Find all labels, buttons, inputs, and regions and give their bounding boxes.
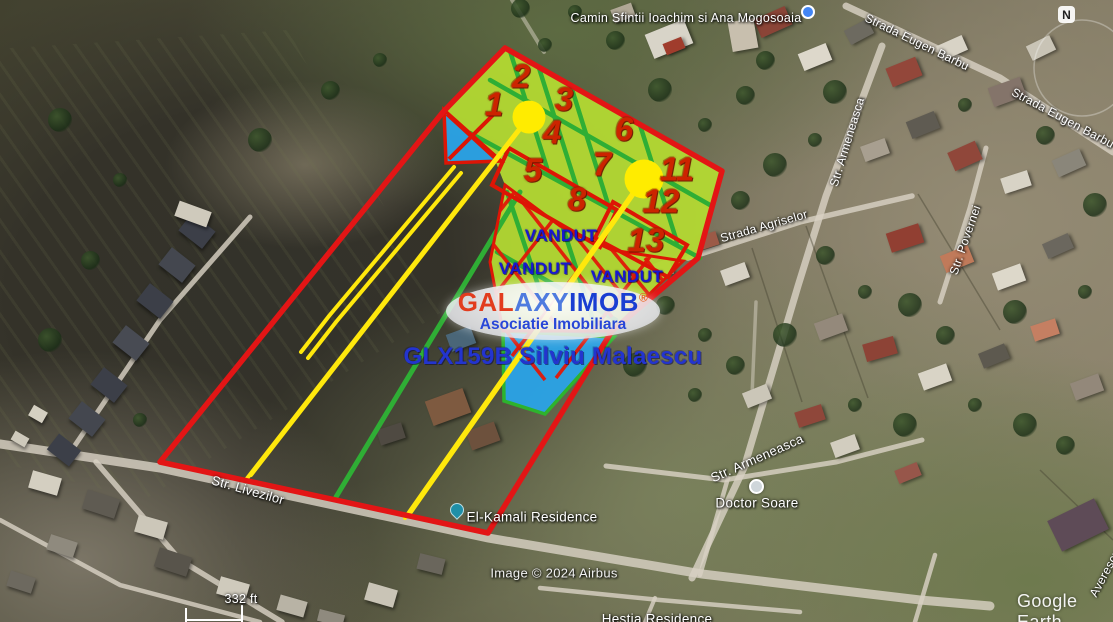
plot-number-13: 13 — [628, 224, 665, 257]
plot-number-3: 3 — [555, 83, 573, 116]
label-el-kamali-residence: El-Kamali Residence — [466, 510, 597, 525]
logo-subtitle: Asociatie Imobiliara — [480, 317, 626, 333]
poi-dot-camin — [801, 5, 815, 19]
logo-wordmark: GALAXYIMOB® — [458, 289, 649, 315]
plot-number-1: 1 — [485, 88, 503, 121]
yellow-marker-circle-1 — [513, 101, 546, 134]
plot-number-12: 12 — [643, 185, 680, 218]
vandut-label-1: VANDUT — [525, 226, 598, 246]
plot-number-4: 4 — [543, 116, 561, 149]
registered-mark-icon: ® — [639, 291, 648, 305]
vandut-label-3: VANDUT — [591, 267, 664, 287]
label-camin: Camin Sfintii Ioachim si Ana Mogosoaia — [571, 11, 802, 25]
satellite-map-canvas: Camin Sfintii Ioachim si Ana Mogosoaia S… — [0, 0, 1113, 622]
scale-label: 332 ft — [224, 592, 257, 606]
plot-number-7: 7 — [593, 148, 611, 181]
label-doctor-soare: Doctor Soare — [715, 496, 798, 511]
plot-number-6: 6 — [615, 113, 633, 146]
compass-north-icon: N — [1058, 6, 1075, 23]
plot-number-8: 8 — [568, 183, 586, 216]
image-credit: Image © 2024 Airbus — [490, 566, 617, 581]
scale-bar — [186, 605, 242, 622]
plot-number-5: 5 — [524, 154, 542, 187]
listing-code: GLX159B Silviu Malaescu — [403, 343, 702, 371]
plot-number-11: 11 — [660, 153, 694, 186]
vandut-label-2: VANDUT — [499, 259, 572, 279]
google-earth-watermark: Google Earth — [1017, 591, 1081, 622]
galaxyimob-logo: GALAXYIMOB® Asociatie Imobiliara — [446, 282, 660, 340]
plot-number-2: 2 — [512, 60, 530, 93]
poi-dot-doctor-soare — [749, 479, 764, 494]
label-hestia-residence: Hestia Residence — [602, 612, 713, 622]
